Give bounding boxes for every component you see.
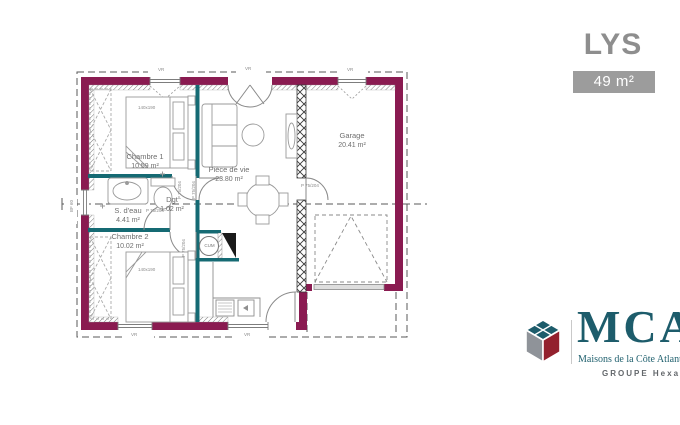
window-label: VR: [131, 332, 137, 337]
door-size-label: P 75/204: [181, 239, 186, 257]
kitchen-unit: [213, 262, 260, 317]
bed-size-label: 140x190: [138, 105, 155, 110]
room-label-garage: Garage 20.41 m²: [302, 131, 402, 151]
room-area: 20.41 m²: [302, 141, 402, 151]
door-size-label: P 75/204: [191, 181, 196, 199]
window-label: VR: [244, 332, 250, 337]
room-name: Garage: [302, 131, 402, 141]
mca-cube-icon: [520, 316, 566, 366]
water-heater-label: CUM: [201, 243, 218, 248]
room-name: Chambre 1: [95, 152, 195, 162]
bed-size-label: 140x190: [138, 267, 155, 272]
door-size-label: P 75/204: [177, 181, 182, 199]
window-label: VR: [158, 67, 164, 72]
door-size-label: P 75/204: [146, 208, 164, 213]
door-size-label: P 75/204: [301, 183, 319, 188]
window-label: VR: [347, 67, 353, 72]
room-label-chambre2: Chambre 2 10.02 m²: [80, 232, 180, 252]
plan-title: LYS: [563, 28, 663, 62]
room-name: Pièce de vie: [179, 165, 279, 175]
room-area: 10.02 m²: [80, 242, 180, 252]
floorplan-page: Chambre 1 10.59 m² S. d'eau 4.41 m² Cham…: [0, 0, 680, 425]
window-label: BF 60: [69, 200, 74, 212]
logo-divider: [571, 320, 572, 364]
garage-door: [314, 215, 387, 290]
mca-tagline: Maisons de la Côte Atlantique: [578, 354, 680, 365]
mca-logo-text: MCA: [577, 301, 680, 353]
area-badge: 49 m²: [573, 71, 655, 93]
living-furniture: [202, 104, 297, 224]
mca-group-text: GROUPE Hexaōm: [602, 369, 680, 378]
window-label: VR: [245, 66, 251, 71]
room-area: 4.41 m²: [88, 216, 168, 226]
room-name: Chambre 2: [80, 232, 180, 242]
garage-separation-wall: [297, 85, 306, 292]
